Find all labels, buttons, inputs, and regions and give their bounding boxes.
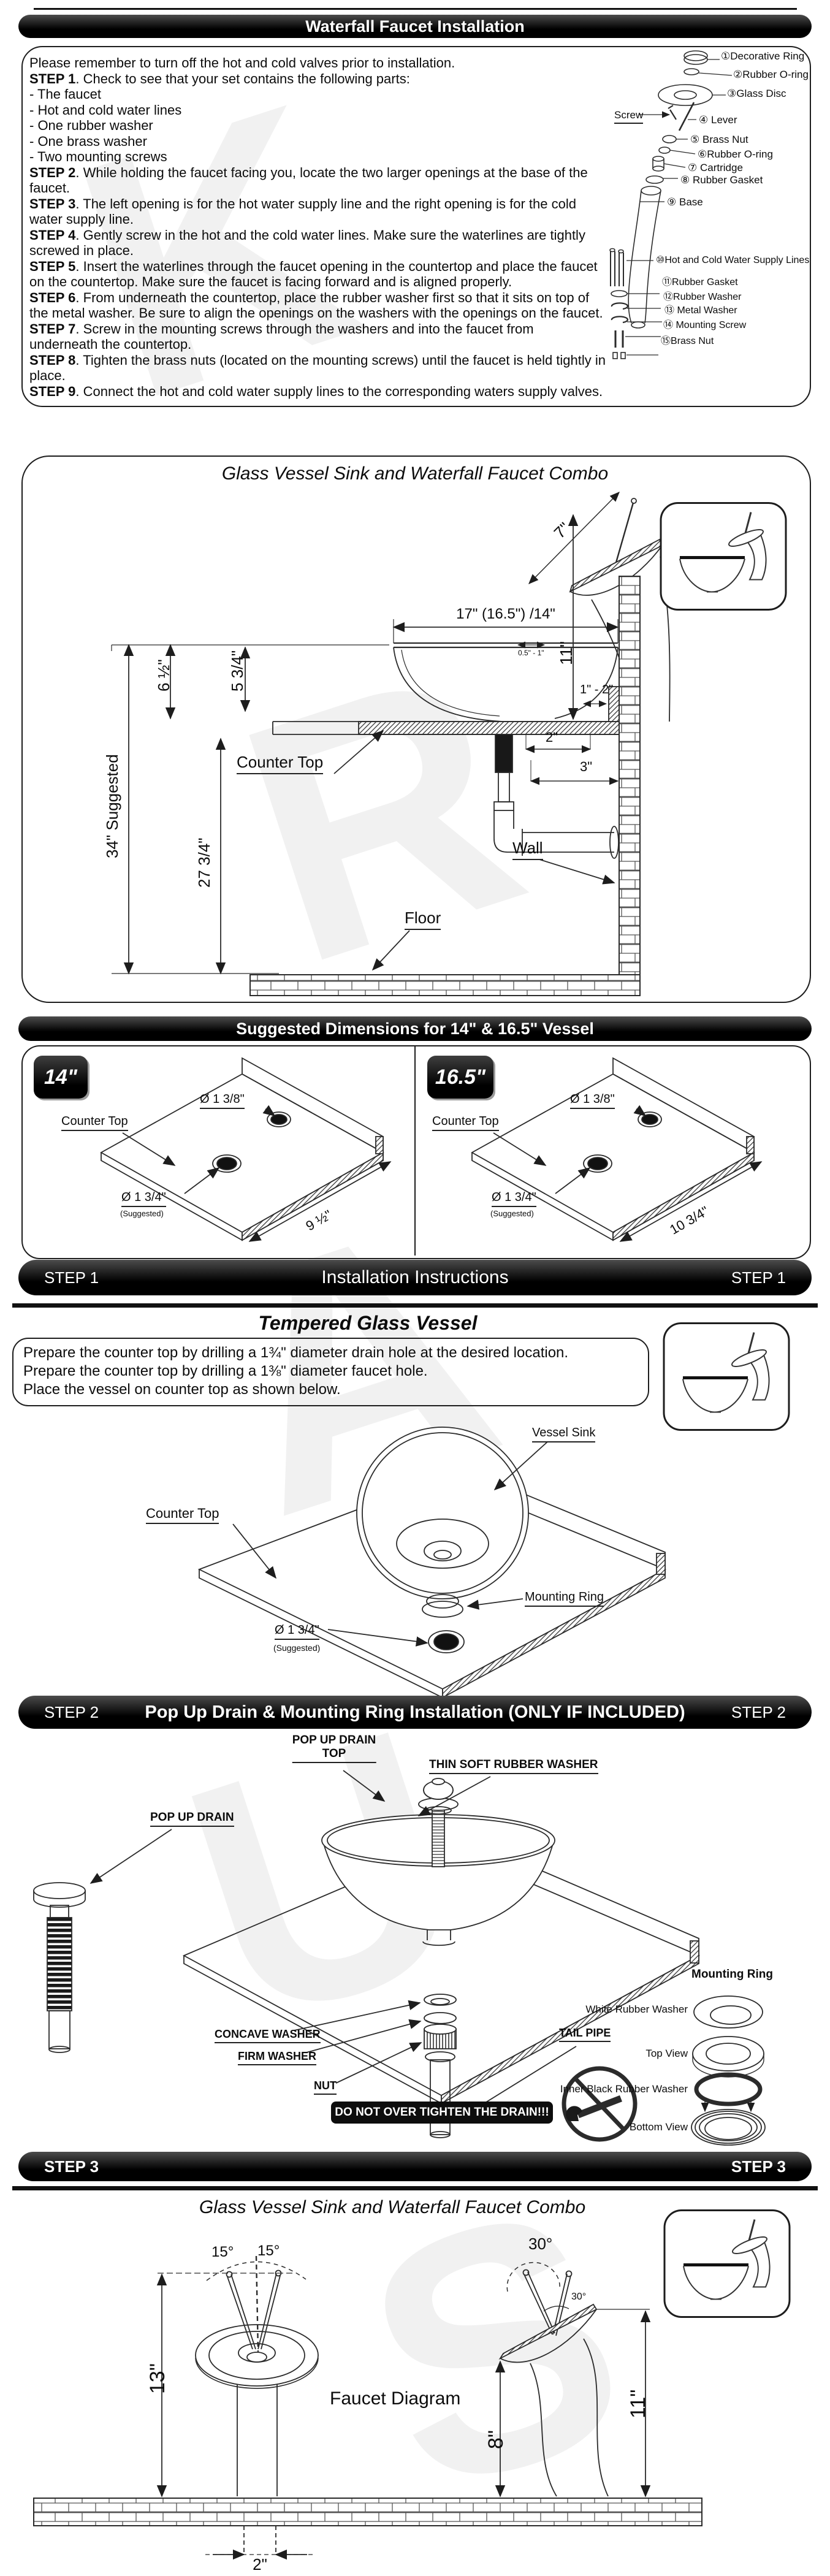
intro-line: - The faucet	[29, 86, 606, 102]
step1-bar: STEP 1 Installation Instructions STEP 1	[18, 1260, 812, 1295]
dim-11in: 11"	[557, 641, 576, 665]
dim-width: 17" (16.5") /14"	[456, 606, 555, 623]
step1-note-line: Prepare the counter top by drilling a 1¾…	[23, 1344, 639, 1362]
step1-vessel-drawing	[21, 1404, 809, 1698]
intro-line: STEP 8. Tighten the brass nuts (located …	[29, 352, 606, 384]
step2-drawing	[21, 1730, 809, 2153]
suggested-dims-bar: Suggested Dimensions for 14" & 16.5" Ves…	[18, 1016, 812, 1041]
intro-line: STEP 2. While holding the faucet facing …	[29, 165, 606, 196]
part-label-mounting-screw: ⑭ Mounting Screw	[663, 316, 746, 331]
step3-title: Glass Vessel Sink and Waterfall Faucet C…	[199, 2197, 585, 2218]
intro-text: Please remember to turn off the hot and …	[29, 55, 606, 399]
step1-note-lines: Prepare the counter top by drilling a 1¾…	[23, 1344, 639, 1399]
intro-line: STEP 5. Insert the waterlines through th…	[29, 259, 606, 290]
divider-rule-1	[12, 1303, 818, 1308]
inner-black-rubber-washer-label: Inner Black Rubber Washer	[560, 2083, 688, 2095]
dim-5-34: 5 3/4"	[228, 650, 247, 692]
bottom-view-label: Bottom View	[630, 2121, 688, 2133]
dim-2in: 2"	[546, 730, 558, 745]
part-label-brass-nut-2: ⑮Brass Nut	[661, 332, 714, 347]
step1-tag-right: STEP 1	[731, 1268, 786, 1287]
step1-hole-label: Ø 1 3/4"	[275, 1623, 319, 1640]
divider-rule-2	[12, 2186, 818, 2190]
dim-2in-bottom: 2"	[253, 2555, 267, 2574]
dim-11in-faucet: 11"	[626, 2390, 650, 2418]
part-label-screw: Screw	[614, 109, 643, 124]
part-label-supply-lines: ⑩Hot and Cold Water Supply Lines	[656, 254, 809, 266]
angle-15-right: 15°	[257, 2243, 280, 2260]
left-drain-hole-label: Ø 1 3/4"	[121, 1191, 166, 1207]
right-drain-hole-label: Ø 1 3/4"	[492, 1191, 536, 1207]
part-label-cartridge: ⑦ Cartridge	[688, 162, 743, 174]
step1-tag-left: STEP 1	[44, 1268, 99, 1287]
combo-title: Glass Vessel Sink and Waterfall Faucet C…	[222, 463, 608, 484]
part-label-metal-washer: ⑬ Metal Washer	[664, 302, 737, 316]
firm-washer-label: FIRM WASHER	[238, 2050, 316, 2065]
step2-tag-right: STEP 2	[731, 1703, 786, 1722]
part-label-glass-disc: ③Glass Disc	[727, 88, 786, 100]
combo-wall-label: Wall	[512, 839, 543, 860]
pop-up-drain-label: POP UP DRAIN	[150, 1811, 234, 1827]
vessel-sink-label: Vessel Sink	[532, 1426, 595, 1442]
intro-line: STEP 7. Screw in the mounting screws thr…	[29, 321, 606, 352]
combo-counter-top-label: Counter Top	[237, 753, 323, 774]
right-suggested-label: (Suggested)	[490, 1209, 534, 1218]
dim-27-34: 27 3/4"	[195, 837, 214, 888]
mounting-ring-heading: Mounting Ring	[691, 1968, 773, 1981]
top-view-label: Top View	[645, 2048, 688, 2060]
sink-faucet-icon	[659, 500, 788, 613]
left-faucet-hole-label: Ø 1 3/8"	[200, 1092, 245, 1109]
dim-34-suggested: 34" Suggested	[103, 754, 122, 858]
step1-subtitle: Tempered Glass Vessel	[259, 1312, 478, 1335]
right-counter-top-label: Counter Top	[432, 1115, 499, 1131]
part-label-base: ⑨ Base	[667, 196, 703, 208]
part-label-rubber-oring-1: ②Rubber O-ring	[733, 69, 809, 81]
step2-bar: STEP 2 Pop Up Drain & Mounting Ring Inst…	[18, 1696, 812, 1729]
intro-line: - One rubber washer	[29, 118, 606, 134]
step1-note-line: Prepare the counter top by drilling a 1⅜…	[23, 1362, 639, 1381]
step1-counter-top-label: Counter Top	[146, 1506, 219, 1524]
intro-line: STEP 9. Connect the hot and cold water s…	[29, 384, 606, 400]
dim-gap-1-2: 1" - 2"	[580, 683, 613, 697]
part-label-rubber-oring-2: ⑥Rubber O-ring	[698, 148, 773, 161]
intro-line: Please remember to turn off the hot and …	[29, 55, 606, 71]
page-title: Waterfall Faucet Installation	[305, 17, 525, 36]
concave-washer-label: CONCAVE WASHER	[215, 2028, 321, 2043]
thin-soft-rubber-washer-label: THIN SOFT RUBBER WASHER	[429, 1758, 598, 1774]
faucet-diagram-label: Faucet Diagram	[330, 2388, 460, 2409]
angle-15-left: 15°	[211, 2244, 234, 2261]
tail-pipe-label: TAIL PIPE	[559, 2027, 611, 2042]
intro-line: STEP 1. Check to see that your set conta…	[29, 71, 606, 87]
step1-suggested-label: (Suggested)	[273, 1643, 320, 1653]
dim-gap-05-1: 0.5" - 1"	[518, 649, 544, 657]
part-label-lever: ④ Lever	[699, 114, 737, 126]
part-label-rubber-gasket-2: ⑪Rubber Gasket	[662, 273, 738, 288]
left-suggested-label: (Suggested)	[120, 1209, 164, 1218]
sink-faucet-icon	[663, 2207, 791, 2320]
part-label-decorative-ring: ①Decorative Ring	[721, 50, 804, 63]
intro-line: STEP 4. Gently screw in the hot and the …	[29, 227, 606, 259]
combo-floor-label: Floor	[405, 909, 441, 930]
dim-6half: 6 ½"	[154, 659, 173, 692]
step3-tag-left: STEP 3	[44, 2157, 99, 2176]
right-faucet-hole-label: Ø 1 3/8"	[570, 1092, 615, 1109]
step3-tag-right: STEP 3	[731, 2157, 786, 2176]
step1-note-line: Place the vessel on counter top as shown…	[23, 1381, 639, 1399]
part-label-rubber-washer: ⑫Rubber Washer	[663, 288, 741, 303]
left-counter-top-label: Counter Top	[61, 1115, 128, 1131]
top-rule	[34, 8, 797, 10]
intro-line: - Two mounting screws	[29, 149, 606, 165]
dim-13in: 13"	[146, 2363, 170, 2394]
intro-line: - One brass washer	[29, 134, 606, 150]
do-not-overtighten-badge: DO NOT OVER TIGHTEN THE DRAIN!!!	[331, 2102, 553, 2124]
angle-30-small: 30°	[571, 2292, 586, 2303]
intro-line: STEP 6. From underneath the countertop, …	[29, 290, 606, 321]
step1-heading: Installation Instructions	[321, 1267, 508, 1288]
angle-30-big: 30°	[528, 2235, 552, 2254]
badge-16-5in: 16.5"	[427, 1056, 493, 1099]
intro-line: - Hot and cold water lines	[29, 102, 606, 118]
badge-14in: 14"	[34, 1056, 88, 1099]
pop-up-drain-top-label: POP UP DRAINTOP	[292, 1734, 376, 1763]
step2-heading: Pop Up Drain & Mounting Ring Installatio…	[145, 1702, 685, 1723]
dim-8in: 8"	[484, 2430, 508, 2449]
part-label-rubber-gasket-1: ⑧ Rubber Gasket	[680, 174, 763, 186]
step1-mounting-ring-label: Mounting Ring	[525, 1590, 604, 1607]
white-rubber-washer-label: White Rubber Washer	[585, 2003, 688, 2016]
step2-tag-left: STEP 2	[44, 1703, 99, 1722]
dim-3in: 3"	[580, 759, 592, 775]
header-bar: Waterfall Faucet Installation	[18, 15, 812, 38]
intro-line: STEP 3. The left opening is for the hot …	[29, 196, 606, 227]
instruction-sheet: K R A U S Waterfall Faucet Installation …	[0, 0, 830, 2576]
nut-label: NUT	[314, 2079, 337, 2095]
part-label-brass-nut-1: ⑤ Brass Nut	[690, 134, 748, 146]
step3-bar: STEP 3 STEP 3	[18, 2152, 812, 2181]
suggested-dims-title: Suggested Dimensions for 14" & 16.5" Ves…	[236, 1019, 594, 1038]
